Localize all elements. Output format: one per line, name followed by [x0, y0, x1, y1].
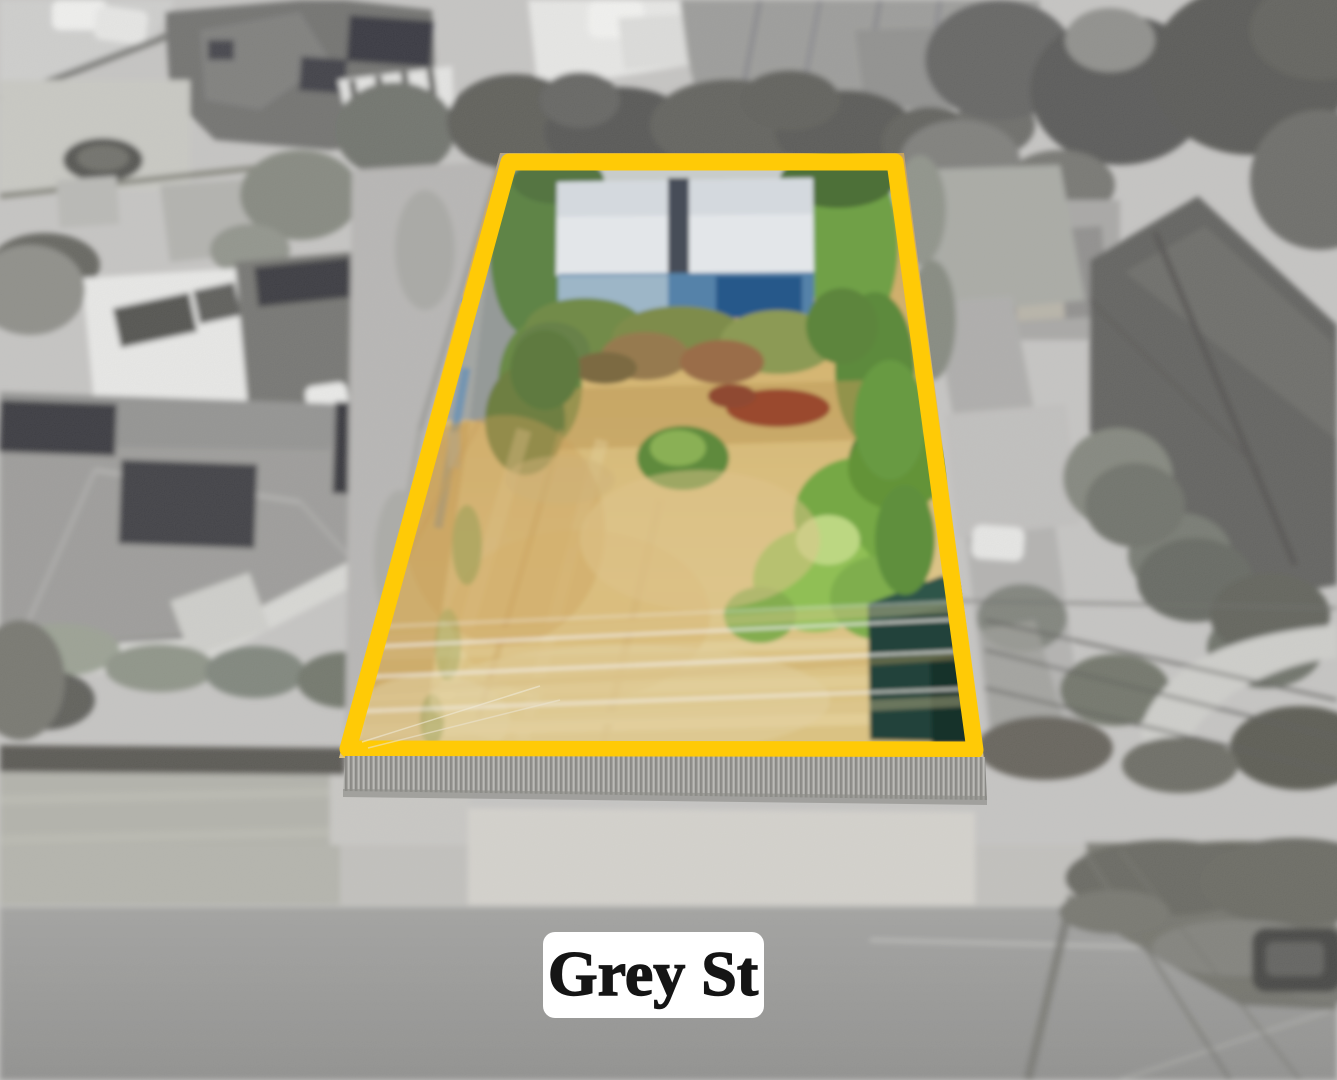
- svg-text:Grey St: Grey St: [548, 938, 759, 1009]
